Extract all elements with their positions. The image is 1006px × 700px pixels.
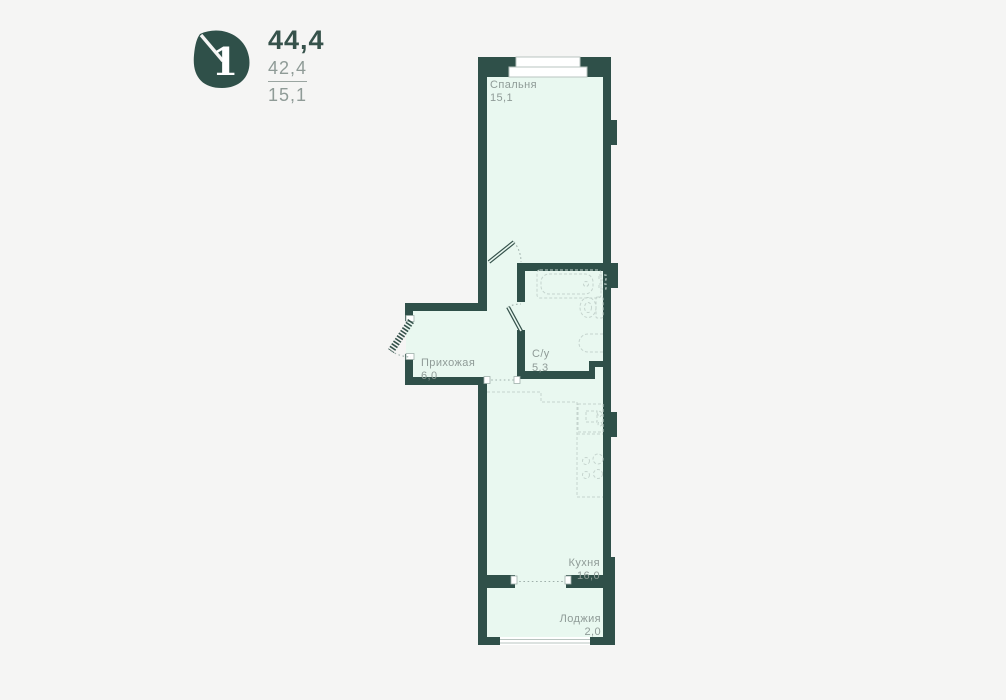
floor-plan: Спальня 15,1 Прихожая 6,0 С/у 5,3 Кухня … <box>0 0 1006 700</box>
room-area: 6,0 <box>421 370 438 382</box>
room-area: 15,1 <box>490 92 513 104</box>
hallway-interior <box>406 308 490 380</box>
room-area: 16,0 <box>577 570 600 582</box>
room-name: Кухня <box>569 557 600 569</box>
room-name: Спальня <box>490 79 537 91</box>
room-area: 2,0 <box>585 626 602 638</box>
room-name: Прихожая <box>421 357 475 369</box>
room-area: 5,3 <box>532 362 549 374</box>
loggia-window <box>500 637 590 645</box>
room-name: Лоджия <box>560 613 601 625</box>
room-name: С/у <box>532 348 550 360</box>
bedroom-window <box>509 57 587 77</box>
